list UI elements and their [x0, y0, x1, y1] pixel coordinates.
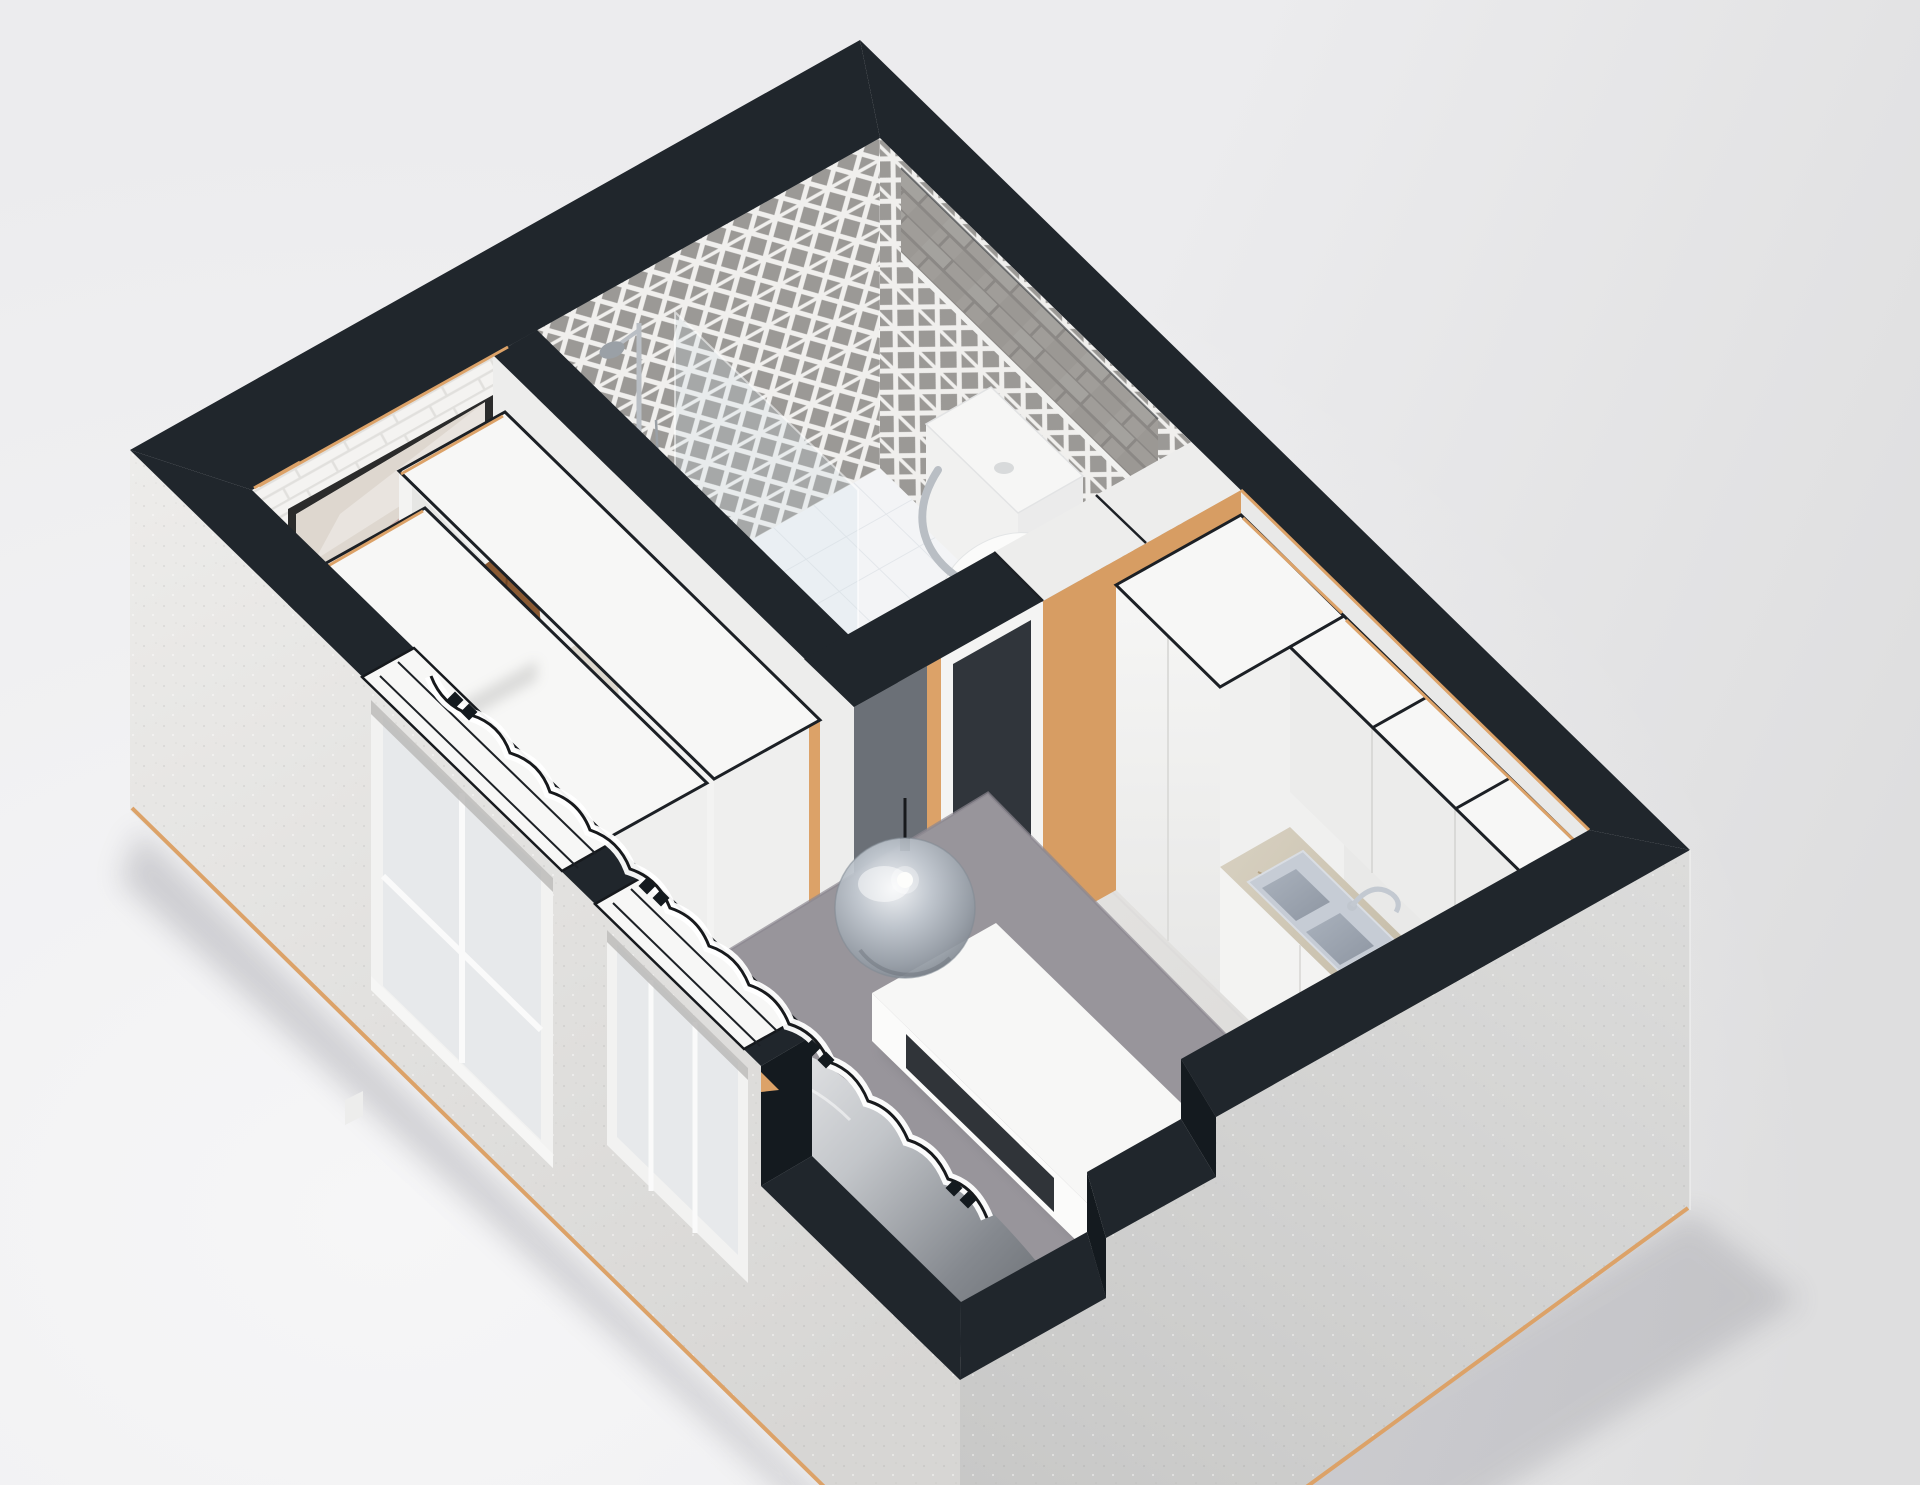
- apartment-render: [0, 0, 1920, 1485]
- lamp-bulb: [897, 872, 913, 888]
- glass-sphere: [835, 838, 975, 978]
